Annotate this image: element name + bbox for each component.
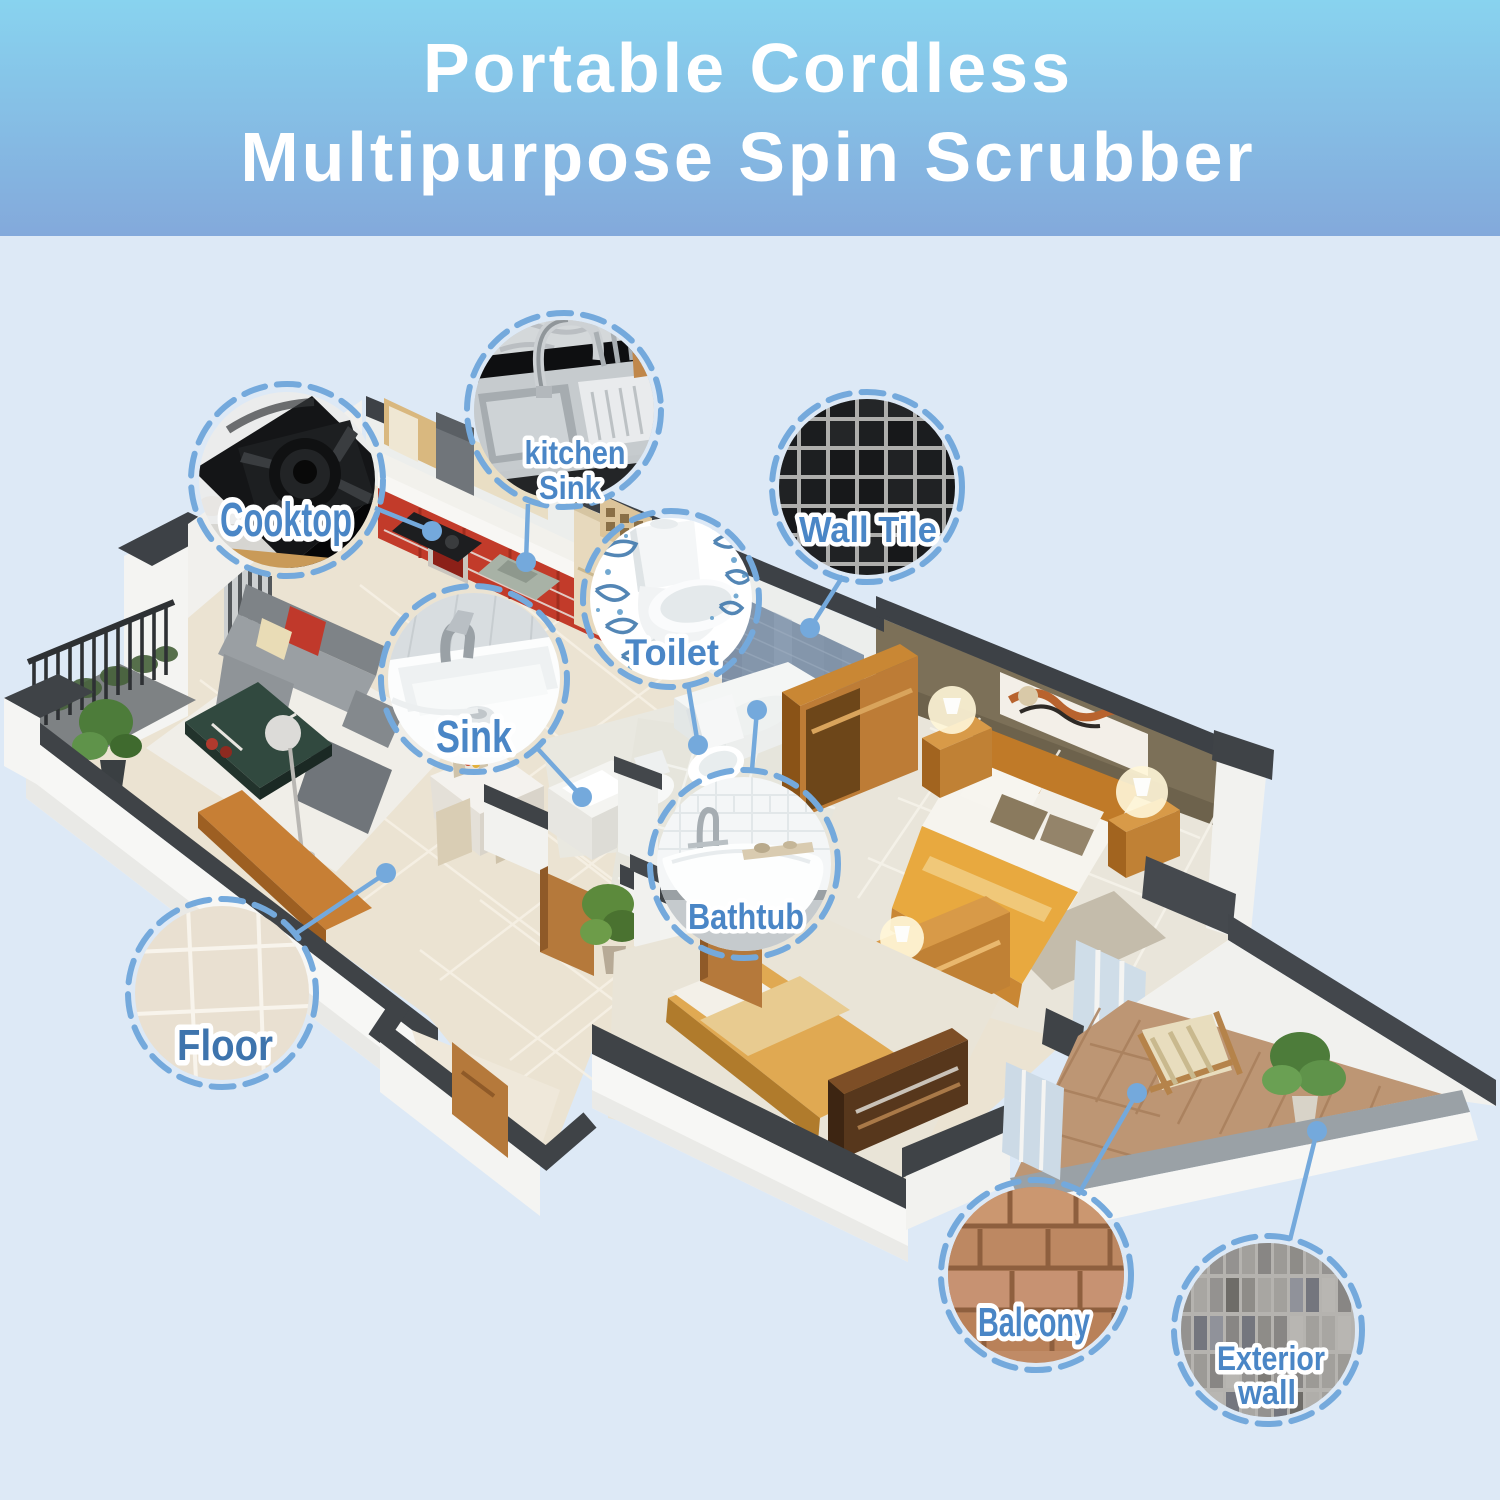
svg-text:Cooktop: Cooktop [220, 494, 352, 547]
svg-text:Sink: Sink [436, 711, 513, 762]
svg-text:Balcony: Balcony [978, 1299, 1090, 1345]
svg-text:Wall Tile: Wall Tile [799, 509, 937, 550]
svg-text:Multipurpose Spin Scrubber: Multipurpose Spin Scrubber [240, 118, 1255, 196]
svg-text:Exterior: Exterior [1217, 1340, 1325, 1378]
svg-text:Floor: Floor [177, 1021, 273, 1070]
svg-text:wall: wall [1237, 1374, 1296, 1412]
svg-text:kitchen: kitchen [525, 434, 626, 471]
svg-text:Portable Cordless: Portable Cordless [423, 29, 1073, 107]
svg-text:Bathtub: Bathtub [688, 896, 804, 937]
svg-text:Sink: Sink [539, 469, 602, 506]
svg-text:Toilet: Toilet [625, 632, 719, 673]
